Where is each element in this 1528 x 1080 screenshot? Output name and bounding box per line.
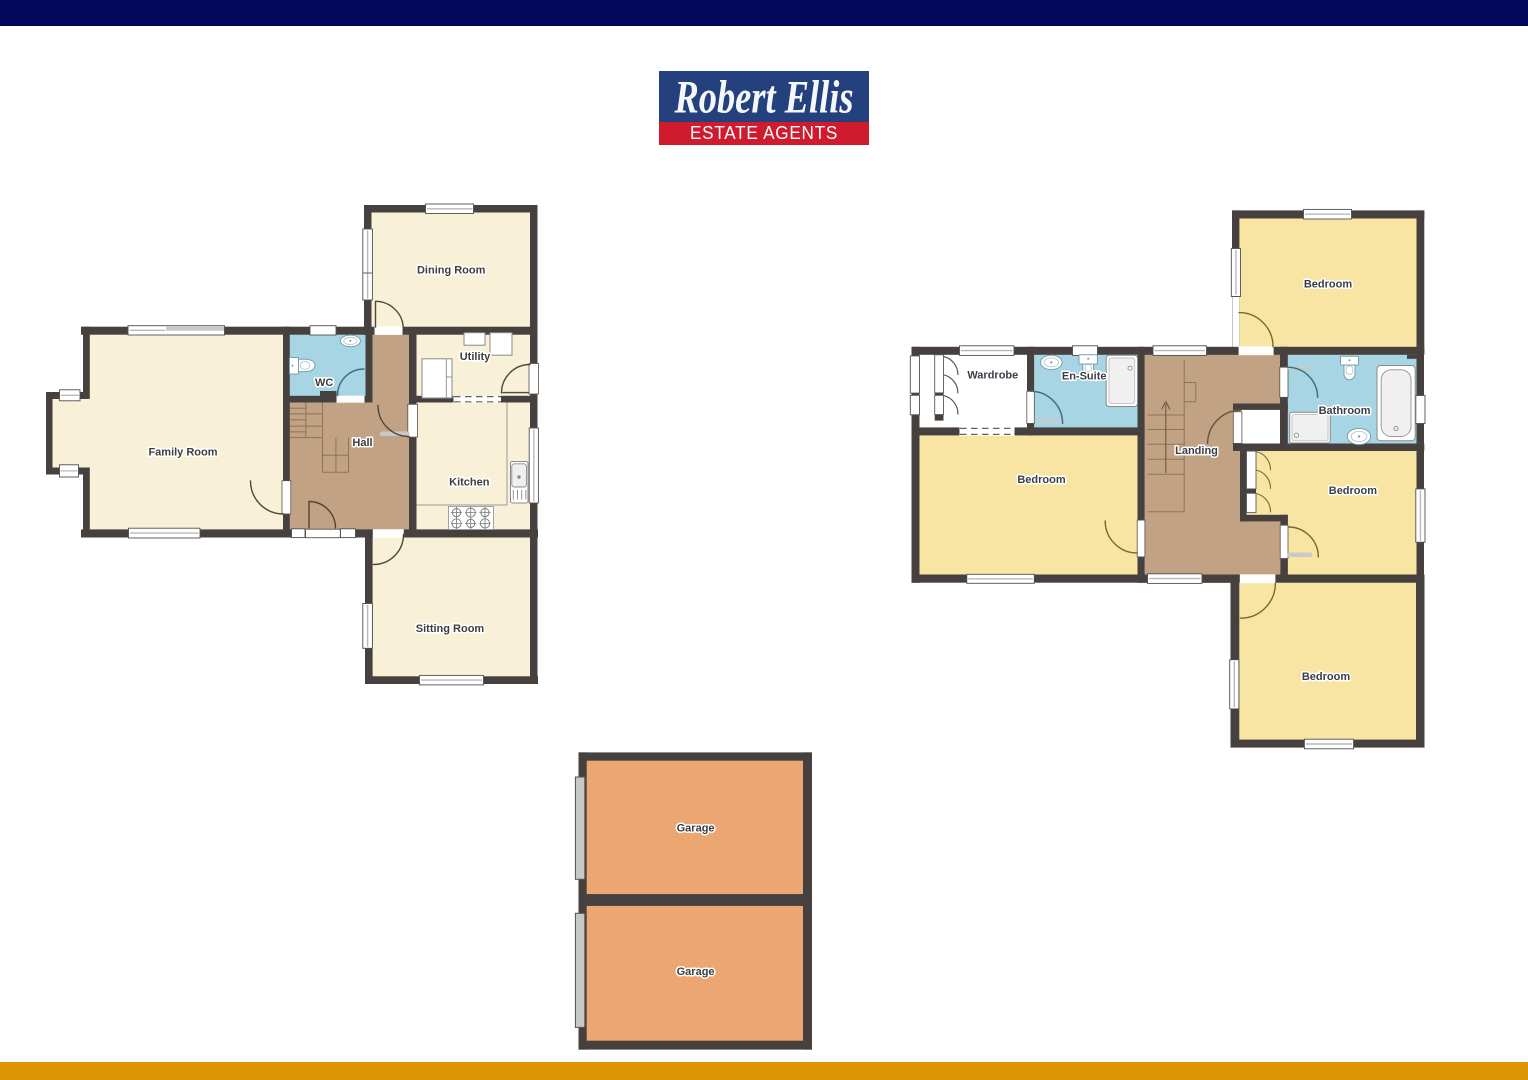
svg-text:Landing: Landing (1175, 445, 1218, 457)
svg-text:Bedroom: Bedroom (1302, 671, 1351, 683)
svg-text:Bedroom: Bedroom (1329, 485, 1378, 497)
svg-text:Utility: Utility (460, 351, 491, 363)
svg-text:Garage: Garage (677, 823, 715, 835)
svg-text:Sitting Room: Sitting Room (416, 623, 485, 635)
svg-text:Bathroom: Bathroom (1319, 405, 1371, 417)
svg-text:Bedroom: Bedroom (1304, 279, 1353, 291)
svg-text:Family Room: Family Room (148, 447, 217, 459)
svg-text:Wardrobe: Wardrobe (967, 370, 1018, 382)
svg-text:Garage: Garage (677, 966, 715, 978)
svg-text:Kitchen: Kitchen (449, 477, 490, 489)
svg-text:WC: WC (315, 377, 333, 389)
svg-text:Dining Room: Dining Room (417, 265, 486, 277)
svg-text:Hall: Hall (352, 437, 372, 449)
svg-text:En-Suite: En-Suite (1062, 370, 1107, 382)
svg-text:Bedroom: Bedroom (1017, 474, 1066, 486)
